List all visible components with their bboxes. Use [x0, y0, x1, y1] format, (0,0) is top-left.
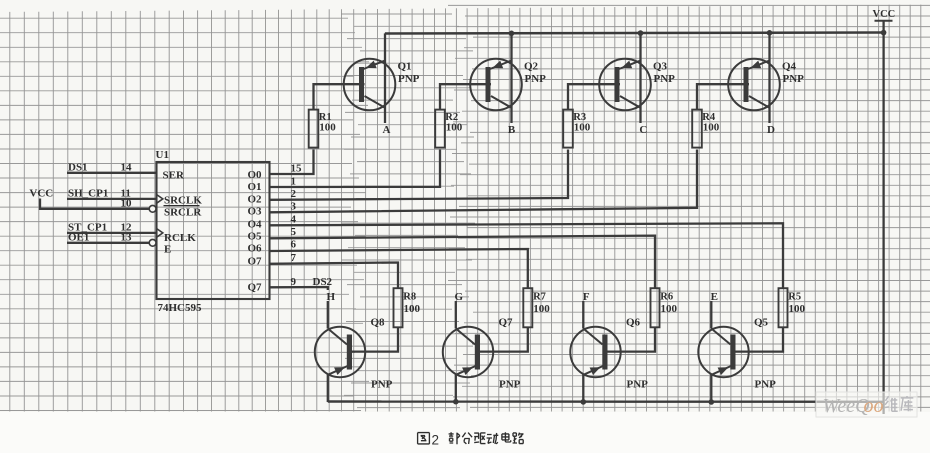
svg-text:3: 3 — [291, 201, 297, 213]
svg-text:B: B — [508, 124, 516, 136]
svg-text:15: 15 — [291, 163, 303, 175]
svg-text:100: 100 — [533, 303, 550, 315]
svg-text:PNP: PNP — [627, 379, 649, 391]
svg-text:O7: O7 — [247, 255, 262, 267]
svg-text:74HC595: 74HC595 — [158, 302, 203, 314]
svg-text:5: 5 — [291, 226, 297, 238]
svg-text:PNP: PNP — [783, 73, 805, 85]
svg-text:4: 4 — [291, 213, 297, 225]
svg-text:E: E — [164, 244, 171, 256]
svg-text:Q2: Q2 — [524, 60, 539, 72]
svg-text:9: 9 — [291, 276, 297, 288]
svg-text:O1: O1 — [247, 181, 261, 193]
svg-text:O2: O2 — [247, 194, 262, 206]
svg-text:O3: O3 — [247, 206, 262, 218]
svg-text:2: 2 — [432, 432, 440, 447]
svg-text:100: 100 — [319, 122, 336, 134]
svg-text:SH_CP1: SH_CP1 — [68, 188, 108, 200]
svg-text:R8: R8 — [403, 291, 416, 302]
svg-text:R5: R5 — [788, 291, 801, 302]
svg-text:Q5: Q5 — [754, 316, 769, 328]
svg-text:SER: SER — [163, 170, 185, 182]
svg-text:DS2: DS2 — [313, 276, 333, 288]
svg-text:O0: O0 — [247, 169, 262, 181]
svg-text:Q4: Q4 — [782, 60, 797, 72]
svg-text:PNP: PNP — [654, 73, 676, 85]
svg-text:PNP: PNP — [499, 379, 521, 391]
svg-text:RCLK: RCLK — [164, 232, 196, 244]
svg-text:2: 2 — [291, 188, 297, 200]
svg-text:VCC: VCC — [873, 9, 896, 20]
svg-text:Q7: Q7 — [247, 282, 262, 294]
svg-text:100: 100 — [661, 303, 678, 315]
svg-text:1: 1 — [291, 176, 297, 188]
svg-text:C: C — [639, 124, 647, 136]
svg-text:O6: O6 — [247, 243, 262, 255]
svg-text:O5: O5 — [247, 231, 262, 243]
svg-text:Q3: Q3 — [653, 60, 668, 72]
svg-text:Q1: Q1 — [398, 60, 412, 72]
svg-text:PNP: PNP — [371, 379, 393, 391]
svg-text:100: 100 — [703, 122, 720, 134]
svg-text:O4: O4 — [247, 218, 262, 230]
svg-text:U1: U1 — [156, 149, 169, 161]
svg-text:R7: R7 — [533, 291, 546, 302]
svg-text:Q6: Q6 — [626, 316, 641, 328]
svg-text:100: 100 — [446, 122, 463, 134]
svg-text:OE1: OE1 — [68, 232, 89, 244]
svg-text:100: 100 — [404, 303, 421, 315]
svg-text:DS1: DS1 — [68, 161, 88, 173]
svg-text:oo: oo — [864, 395, 884, 417]
svg-text:7: 7 — [291, 252, 297, 264]
svg-text:Q7: Q7 — [499, 316, 514, 328]
svg-text:10: 10 — [121, 198, 133, 210]
svg-text:13: 13 — [121, 232, 133, 244]
svg-text:14: 14 — [121, 161, 133, 173]
svg-text:D: D — [767, 124, 775, 136]
svg-text:100: 100 — [574, 122, 591, 134]
svg-text:A: A — [383, 124, 391, 136]
svg-text:SRCLK: SRCLK — [164, 194, 202, 206]
svg-text:SRCLR: SRCLR — [164, 207, 202, 219]
svg-text:Q8: Q8 — [371, 316, 386, 328]
svg-text:PNP: PNP — [755, 379, 777, 391]
svg-text:100: 100 — [789, 303, 806, 315]
svg-text:R6: R6 — [660, 291, 673, 302]
svg-text:PNP: PNP — [398, 73, 420, 85]
svg-text:PNP: PNP — [525, 73, 547, 85]
svg-text:VCC: VCC — [29, 188, 53, 200]
svg-text:6: 6 — [291, 239, 297, 251]
